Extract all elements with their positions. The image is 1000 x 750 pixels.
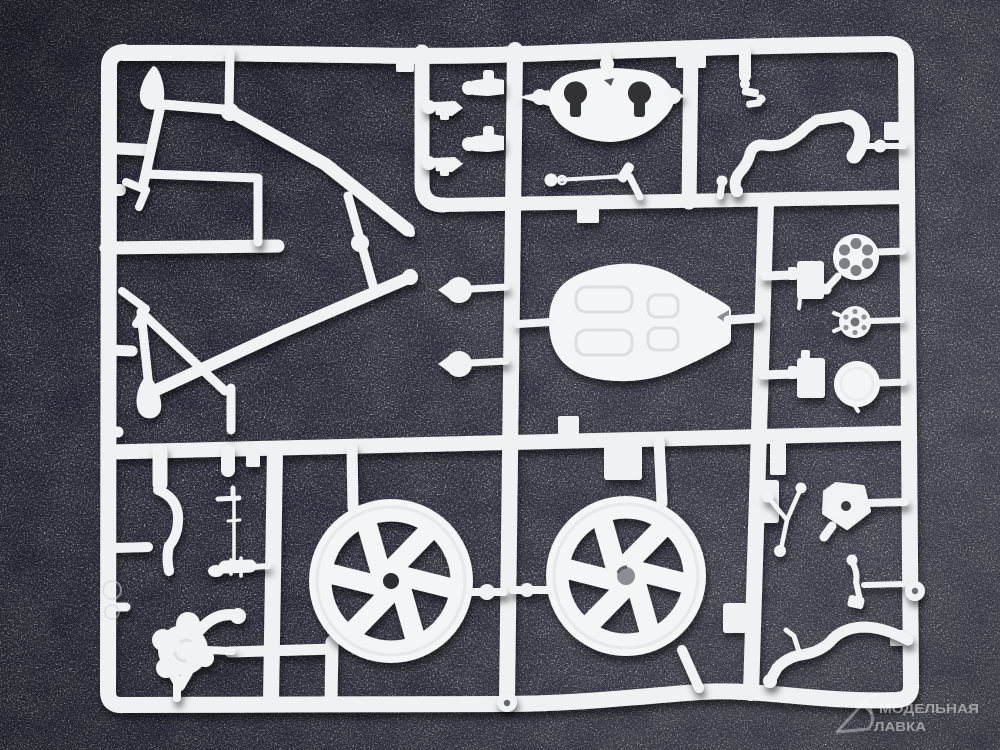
svg-text:ЛАВКА: ЛАВКА bbox=[874, 719, 927, 734]
svg-text:МОДЕЛЬНАЯ: МОДЕЛЬНАЯ bbox=[879, 701, 979, 716]
